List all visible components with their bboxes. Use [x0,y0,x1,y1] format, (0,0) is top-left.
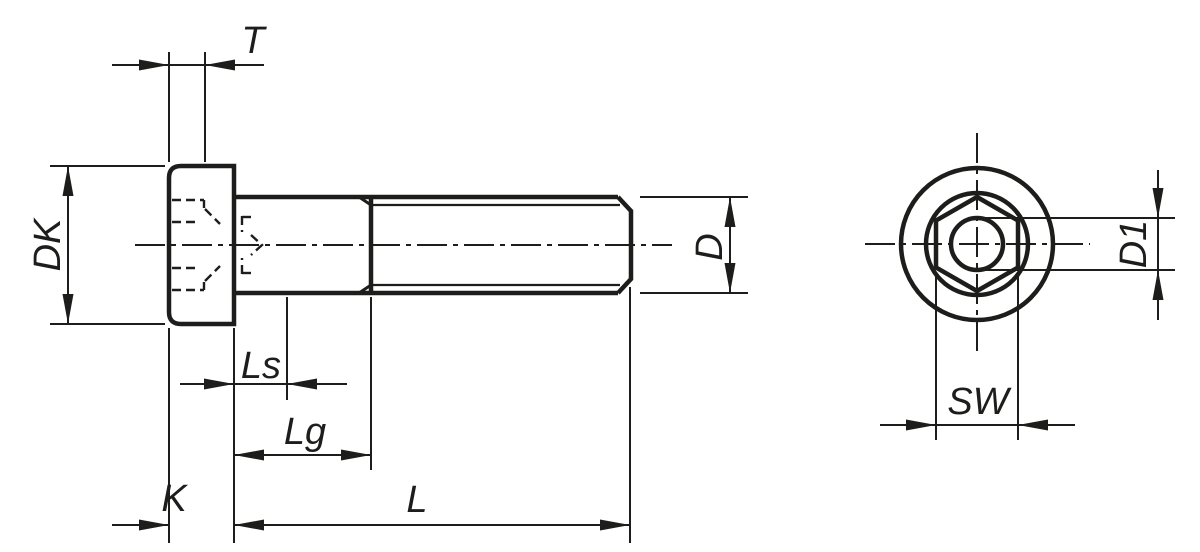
side-view: T DK D Ls [27,20,748,543]
dimension-Ls: Ls [180,297,347,400]
label-Ls: Ls [241,345,281,387]
arrowhead [63,166,74,196]
arrowhead [139,520,169,531]
arrowhead [63,294,74,324]
arrowhead [725,263,736,293]
arrowhead [1153,188,1164,218]
label-T: T [241,20,267,62]
label-K: K [161,478,188,520]
arrowhead [139,60,169,71]
arrowhead [1153,270,1164,300]
label-Lg: Lg [284,411,326,453]
dimension-T: T [112,20,267,162]
label-SW: SW [947,381,1011,423]
label-DK: DK [27,217,69,271]
arrowhead [234,450,264,461]
arrowhead [906,420,936,431]
arrowhead [341,450,371,461]
end-view: D1 SW [865,133,1175,440]
label-D1: D1 [1113,220,1155,269]
arrowhead [204,379,234,390]
label-D: D [689,233,731,260]
label-L: L [406,479,427,521]
technical-drawing-canvas: T DK D Ls [0,0,1200,552]
drawing-stage: T DK D Ls [0,0,1200,552]
arrowhead [600,520,630,531]
arrowhead [287,379,317,390]
arrowhead [725,197,736,227]
extension-lines-T [169,52,205,162]
dimension-K: K [112,328,234,543]
arrowhead [234,520,264,531]
arrowhead [1018,420,1048,431]
arrowhead [205,60,235,71]
